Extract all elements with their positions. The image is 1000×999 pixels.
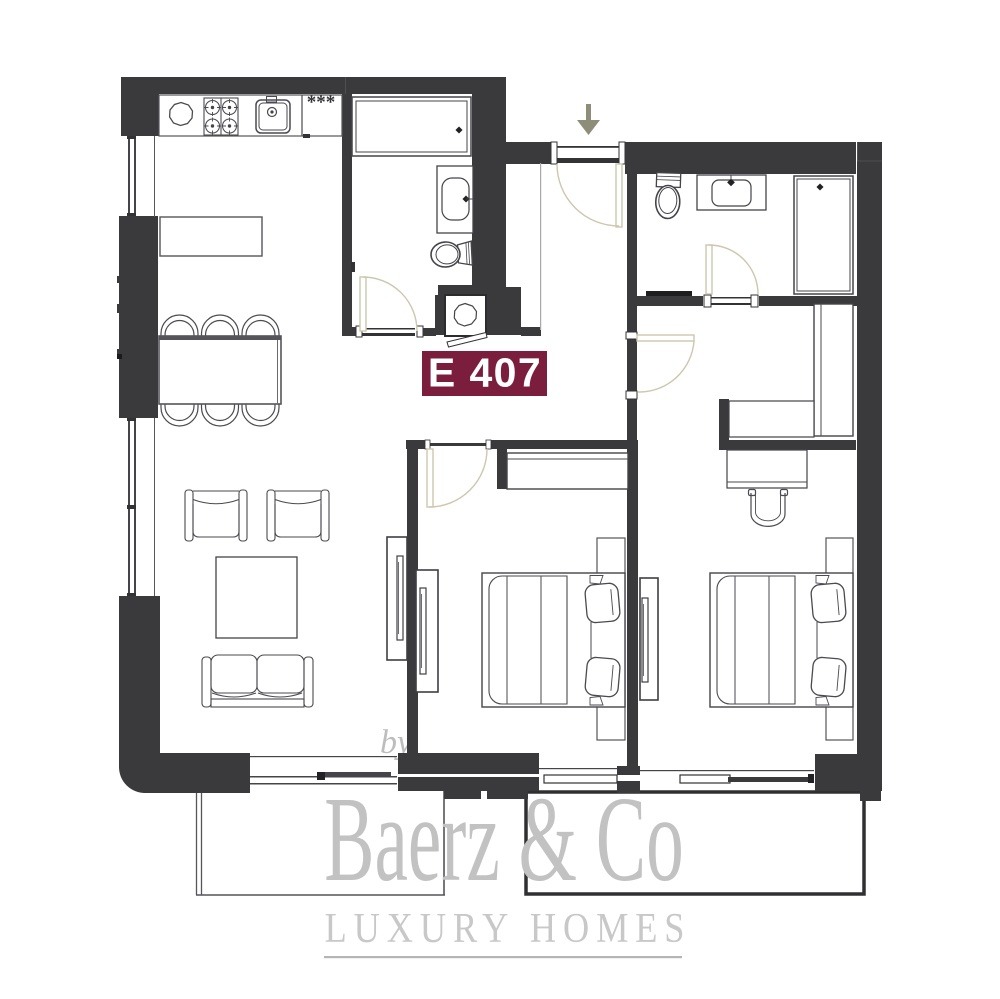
svg-text:LUXURY HOMES: LUXURY HOMES [325, 906, 692, 952]
svg-text:***: *** [307, 92, 336, 113]
svg-text:E 407: E 407 [428, 350, 542, 396]
